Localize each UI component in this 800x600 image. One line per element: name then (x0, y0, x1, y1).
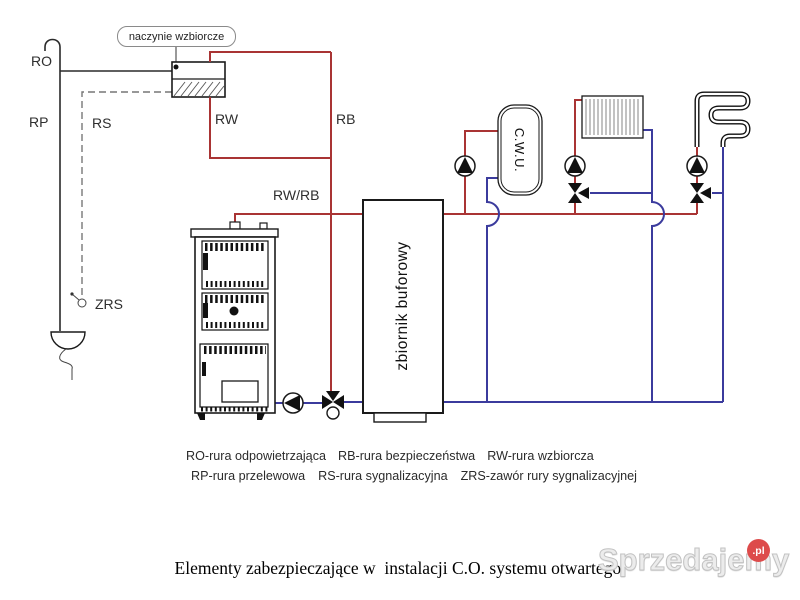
vessel-connection-dot (174, 65, 179, 70)
label-rp: RP (29, 115, 48, 129)
legend-item-zrs: ZRS-zawór rury sygnalizacyjnej (461, 469, 637, 483)
boiler-door-handle (203, 253, 208, 270)
zrs-valve-icon (70, 292, 86, 307)
mixing-valve-icon-radiator (568, 183, 589, 203)
label-rw: RW (215, 112, 238, 126)
buffer-tank-label: zbiornik buforowy (393, 226, 413, 386)
label-rs: RS (92, 116, 111, 130)
boiler-foot (257, 413, 265, 420)
pump-icon-boiler (283, 393, 303, 413)
boiler-door-handle (202, 362, 206, 376)
vent-overflow-pipes (45, 40, 172, 332)
radiator (582, 96, 643, 138)
legend-item-rp: RP-rura przelewowa (191, 469, 305, 483)
legend-item-rb: RB-rura bezpieczeństwa (338, 449, 475, 463)
heating-coil (697, 94, 748, 147)
pump-icon-coil (687, 156, 707, 176)
legend-item-ro: RO-rura odpowietrzająca (186, 449, 326, 463)
cwu-tank-label: C.W.U. (511, 118, 529, 182)
boiler-knob (230, 307, 239, 316)
boiler (191, 222, 278, 420)
boiler-ash-drawer (222, 381, 258, 402)
mixing-valve-icon-coil (690, 183, 711, 203)
legend-row-1: RO-rura odpowietrzająca RB-rura bezpiecz… (186, 449, 594, 463)
overflow-funnel-icon (51, 332, 85, 380)
label-rwrb: RW/RB (273, 188, 319, 202)
legend-item-rw: RW-rura wzbiorcza (487, 449, 594, 463)
label-ro: RO (31, 54, 52, 68)
pump-icon-cwu (455, 156, 475, 176)
legend-item-rs: RS-rura sygnalizacyjna (318, 469, 448, 483)
boiler-door-handle (203, 303, 208, 318)
watermark-pl-badge: .pl (747, 539, 770, 562)
legend-row-2: RP-rura przelewowa RS-rura sygnalizacyjn… (191, 469, 637, 483)
boiler-foot (197, 413, 205, 420)
heating-diagram-canvas: RO RP RS RW RB RW/RB ZRS naczynie wzbior… (0, 0, 800, 600)
label-zrs: ZRS (95, 297, 123, 311)
label-rb: RB (336, 112, 355, 126)
expansion-vessel-callout: naczynie wzbiorcze (117, 26, 236, 47)
pump-icon-radiator (565, 156, 585, 176)
mixing-valve-icon-boiler (322, 391, 344, 419)
